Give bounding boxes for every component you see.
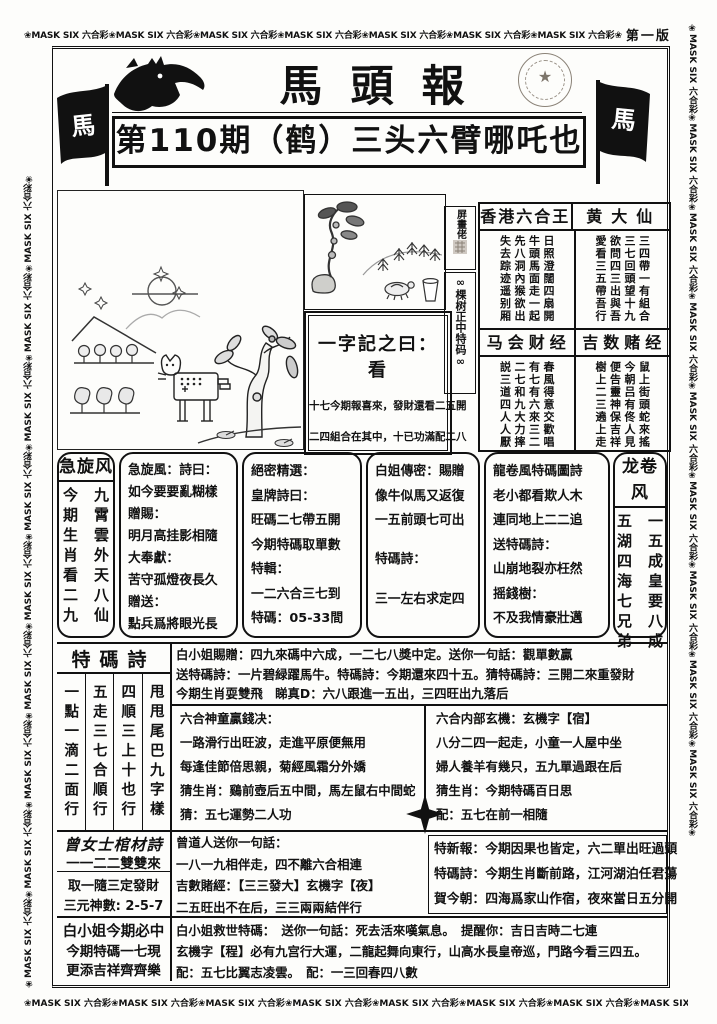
poem-line: 特碼詩： [375, 548, 471, 573]
poem-line: 説三道四人人厭 [500, 361, 511, 449]
must-line2: 更添吉祥齊齊樂 [57, 959, 170, 979]
border-left: ❀MASK SIX 六合彩❀MASK SIX 六合彩❀MASK SIX 六合彩❀… [22, 48, 42, 988]
poem-line: 如今要要亂糊樣 [128, 482, 229, 504]
poem-line: 先八洞內猴欲出 [514, 235, 525, 323]
poem-table-header-row-1: 香港六合王 黄大仙 [480, 204, 669, 231]
poem-line: 吉數賭經：【三三發大】玄機字【夜】 [176, 875, 426, 897]
mini-seal-icon [452, 239, 468, 255]
poem-line: 三七回頭望十九 [624, 235, 635, 323]
poem-line: 旺碼二七帶五開 [251, 509, 353, 534]
poem-line: 二五旺出不在后，三三兩兩結伴行 [176, 897, 426, 919]
section-title-hk-liuhe: 香港六合王 [480, 204, 571, 231]
poem-jishu: 鼠上街頭蛇來搖 今朝吕有佟人見 便告靈神保吉祥 樹上二三遶上走 [592, 361, 654, 446]
longjuan-poem-box: 龍卷風特碼圖詩 老小都看欺人木 連同地上二二追 送特碼詩： 山崩地裂亦枉然 摇錢… [484, 452, 610, 638]
shentong-block: 六合神童贏錢决： 一路滑行出旺波，走進平原便無用 每逢佳節倍思親，菊經風霜分外嬌… [180, 707, 420, 827]
poem-line: 婦人養羊有幾只，五九單過跟在后 [436, 755, 666, 779]
poem-line: 一點一滴二面行 [60, 684, 81, 821]
poem-line: 甩甩尾巴九字樣 [146, 684, 167, 821]
poem-line: 欲問四三出與吾 [610, 235, 621, 323]
tips-rows: 白小姐賜贈：四九來碼中六成，一二七八獎中定。送你一句話：觀單數贏 送特碼詩：一片… [176, 645, 668, 704]
divider-tema-top [57, 642, 668, 644]
one-word-title: 一字記之曰：看 [309, 330, 447, 382]
poem-line: 一路滑行出旺波，走進平原便無用 [180, 731, 420, 755]
tip-row: 今期生肖耍雙飛 睇真D：六八跟進一五出，三四旺出九落后 [176, 684, 668, 704]
texin-box: 特新報：今期因果也皆定，六二單出旺過頭 特碼詩：今期生肖斷前路，江河湖泊任君蕩 … [428, 835, 667, 914]
coffin-line2: 取一隨三定發財 [57, 875, 170, 894]
poem-cell-jishu: 鼠上街頭蛇來搖 今朝吕有佟人見 便告靈神保吉祥 樹上二三遶上走 [574, 357, 670, 450]
poem-line: 鼠上街頭蛇來搖 [639, 361, 650, 449]
xuanfeng-lines: 今期生肖看二九 九霄雲外天八仙 [59, 482, 113, 632]
poem-line: 三四帶一有組合 [639, 235, 650, 323]
poem-line: 玄機字【程】必有九宫行大運，二龍起舞向東行，山高水長皇帝巡，門路今看三四五。 [176, 941, 666, 962]
poem-line: 樹上二三遶上走 [595, 361, 606, 449]
right-flag-banner-icon: 馬 [588, 74, 652, 188]
poem-line: 特碼：05-33間 [251, 607, 353, 632]
coffin-line3: 三元神數: 2-5-7 [57, 895, 170, 914]
poem-table: 香港六合王 黄大仙 日照澄闊四扇開 牛頭馬面走一起 先八洞內猴欲出 失去踪迹遥别… [478, 202, 671, 452]
poem-line: 猜：五七運勢二人功 [180, 803, 420, 827]
right-flag-glyph: 馬 [610, 99, 638, 136]
poem-line: 八分二四一起走，小童一人屋中坐 [436, 731, 666, 755]
poem-cell-macai: 春風得意交歡唱 有七有六來三二 二七和九大力摔 説三道四人人厭 [480, 357, 574, 450]
longjuan-line-left: 一五成皇要八成 [645, 513, 666, 653]
side-strip-bottom: ∞棵树正中特码∞ [444, 272, 476, 394]
poem-line: 配：五七在前一相隨 [436, 803, 666, 827]
poem-line: 特新報：今期因果也皆定，六二單出旺過頭 [434, 837, 661, 862]
left-flag-banner-icon: 馬 [55, 80, 115, 190]
side-strip-bottom-label: ∞棵树正中特码∞ [452, 276, 468, 368]
border-top: ❀MASK SIX 六合彩❀MASK SIX 六合彩❀MASK SIX 六合彩❀… [24, 24, 674, 44]
zengdao-block: 曾道人送你一句話： 一八一九相伴走，四不離六合相連 吉數賭經：【三三發大】玄機字… [176, 832, 426, 918]
border-right: ❀MASK SIX 六合彩❀MASK SIX 六合彩❀MASK SIX 六合彩❀… [679, 24, 699, 999]
poem-line: 三一左右求定四 [375, 588, 471, 613]
section-title-jishu: 吉数赌经 [574, 328, 670, 357]
divider-bottom-row [57, 916, 668, 918]
poem-line: 一二六合三七到 [251, 583, 353, 608]
poem-table-body-row-2: 春風得意交歡唱 有七有六來三二 二七和九大力摔 説三道四人人厭 鼠上街頭蛇來搖 … [480, 357, 669, 450]
xuanfeng-line-right: 今期生肖看二九 [60, 487, 81, 627]
poem-line: 賀今朝：四海爲家山作宿，夜來當日五分開 [434, 887, 661, 912]
border-top-text: ❀MASK SIX 六合彩❀MASK SIX 六合彩❀MASK SIX 六合彩❀… [24, 28, 622, 41]
one-word-box: 一字記之曰：看 十七今期報喜來，發財還看二五開 二四組合在其中，十已功滿配二八 [304, 311, 452, 455]
one-word-line2: 二四組合在其中，十已功滿配二八 [309, 429, 447, 444]
baijie-poem: 白姐傳密：賜贈 像牛似馬又返復 一五前頭七可出 特碼詩： 三一左右求定四 [368, 454, 478, 613]
poem-table-body-row-1: 日照澄闊四扇開 牛頭馬面走一起 先八洞內猴欲出 失去踪迹遥别厢 三四帶一有組合 … [480, 231, 669, 328]
poem-line: 有七有六來三二 [529, 361, 540, 449]
poem-line: 送特碼詩： [493, 534, 601, 559]
poem-hk-liuhe: 日照澄闊四扇開 牛頭馬面走一起 先八洞內猴欲出 失去踪迹遥别厢 [496, 235, 558, 324]
landscape-drawing [57, 190, 304, 450]
must-line1: 今期特碼一七現 [57, 940, 170, 960]
poem-cell-hk-liuhe: 日照澄闊四扇開 牛頭馬面走一起 先八洞內猴欲出 失去踪迹遥别厢 [480, 231, 574, 328]
poem-line: 配：五七比翼志凌雲。 配：一三回春四八數 [176, 962, 666, 983]
poem-line: 五走三七合順行 [89, 684, 110, 821]
baijie-box: 白姐傳密：賜贈 像牛似馬又返復 一五前頭七可出 特碼詩： 三一左右求定四 [366, 452, 480, 638]
poem-line: 日照澄闊四扇開 [543, 235, 554, 323]
xuanfeng-poem-box: 急旋風：詩曰： 如今要要亂糊樣 贈賜： 明月高挂影相隨 大奉獻： 苦守孤燈夜長久… [119, 452, 238, 638]
side-strip-top-label: 屏畫佬 [453, 209, 468, 239]
seal-star-icon: ★ [518, 67, 572, 86]
poem-line: 失去踪迹遥别厢 [500, 235, 511, 323]
poem-line: 一五前頭七可出 [375, 509, 471, 534]
poem-line: 一八一九相伴走，四不離六合相連 [176, 854, 426, 876]
section-title-macai: 马会财经 [480, 328, 574, 357]
poem-line: 老小都看欺人木 [493, 485, 601, 510]
longjuan-box: 龙卷风 五湖四海七兄弟 一五成皇要八成 [613, 452, 667, 638]
juemi-poem: 絕密精選： 皇牌詩曰： 旺碼二七帶五開 今期特碼取單數 特輯： 一二六合三七到 … [244, 454, 360, 632]
poem-line: 特碼詩：今期生肖斷前路，江河湖泊任君蕩 [434, 862, 661, 887]
poem-line: 愛看三五帶吾行 [595, 235, 606, 323]
bonsai-scene-drawing [304, 194, 446, 310]
poem-line: 贈送： [128, 592, 229, 614]
tema-col-1: 甩甩尾巴九字樣 [142, 674, 171, 830]
jiushi-block: 白小姐救世特碼： 送你一句話：死去活來嘆氣息。 提醒你：吉日吉時二七連 玄機字【… [176, 920, 666, 983]
longjuan-lines: 五湖四海七兄弟 一五成皇要八成 [615, 508, 665, 658]
longjuan-poem: 龍卷風特碼圖詩 老小都看欺人木 連同地上二二追 送特碼詩： 山崩地裂亦枉然 摇錢… [486, 454, 608, 632]
poem-line: 特輯： [251, 558, 353, 583]
poem-line: 春風得意交歡唱 [543, 361, 554, 449]
tip-row: 白小姐賜贈：四九來碼中六成，一二七八獎中定。送你一句話：觀單數贏 [176, 645, 668, 665]
poem-line: 點兵爲將眼光長 [128, 614, 229, 636]
coffin-line1: 一一二二雙雙來 [57, 852, 170, 872]
tema-col-4: 一點一滴二面行 [57, 674, 85, 830]
divider-tips-bottom [172, 704, 668, 706]
horse-head-art [106, 54, 208, 116]
poem-line: 明月高挂影相隨 [128, 526, 229, 548]
poem-line: 白姐傳密：賜贈 [375, 460, 471, 485]
poem-line: 便告靈神保吉祥 [610, 361, 621, 449]
poem-line: 大奉獻： [128, 548, 229, 570]
poem-macai: 春風得意交歡唱 有七有六來三二 二七和九大力摔 説三道四人人厭 [496, 361, 558, 446]
poem-line: 六合神童贏錢决： [180, 707, 420, 731]
left-flag-glyph: 馬 [69, 105, 97, 142]
side-strip-top: 屏畫佬 [444, 206, 476, 270]
one-word-line1: 十七今期報喜來，發財還看二五開 [309, 398, 447, 413]
sparkle-star-icon [406, 794, 444, 834]
poem-line: 四順三上十也行 [117, 684, 138, 821]
poem-line: 龍卷風特碼圖詩 [493, 460, 601, 485]
poem-line: 贈賜： [128, 504, 229, 526]
poem-wongtaisin: 三四帶一有組合 三七回頭望十九 欲問四三出與吾 愛看三五帶吾行 [592, 235, 654, 324]
poem-cell-wongtaisin: 三四帶一有組合 三七回頭望十九 欲問四三出與吾 愛看三五帶吾行 [574, 231, 670, 328]
one-word-inner: 一字記之曰：看 十七今期報喜來，發財還看二五開 二四組合在其中，十已功滿配二八 [308, 315, 448, 451]
tema-col-2: 四順三上十也行 [113, 674, 142, 830]
xuanfeng-poem: 急旋風：詩曰： 如今要要亂糊樣 贈賜： 明月高挂影相隨 大奉獻： 苦守孤燈夜長久… [121, 454, 236, 636]
xuanfeng-box: 急旋风 今期生肖看二九 九霄雲外天八仙 [57, 452, 115, 638]
newspaper-page: ❀MASK SIX 六合彩❀MASK SIX 六合彩❀MASK SIX 六合彩❀… [0, 0, 717, 1024]
edition-label: 第一版 [626, 25, 671, 44]
section-title-wongtaisin: 黄大仙 [571, 204, 670, 231]
border-bottom: ❀MASK SIX 六合彩❀MASK SIX 六合彩❀MASK SIX 六合彩❀… [24, 996, 688, 1014]
issue-headline: 第110期（鹤）三头六臂哪吒也 [112, 116, 586, 168]
poem-line: 今朝吕有佟人見 [624, 361, 635, 449]
poem-line: 絕密精選： [251, 460, 353, 485]
xuanfeng-title: 急旋风 [59, 454, 113, 482]
poem-line: 山崩地裂亦枉然 [493, 558, 601, 583]
must-title: 白小姐今期必中 [57, 920, 170, 941]
poem-line: 今期特碼取單數 [251, 534, 353, 559]
headline-rule [112, 112, 582, 113]
longjuan-line-right: 五湖四海七兄弟 [614, 513, 635, 653]
poem-line: 每逢佳節倍思親，菊經風霜分外嬌 [180, 755, 420, 779]
poem-line: 六合内部玄機：玄機字【宿】 [436, 707, 666, 731]
longjuan-title: 龙卷风 [615, 454, 665, 508]
tema-columns: 甩甩尾巴九字樣 四順三上十也行 五走三七合順行 一點一滴二面行 [57, 674, 170, 830]
divider-left-column [170, 642, 172, 981]
tip-row: 送特碼詩：一片碧緑躍馬牛。特碼詩：今期還來四十五。猜特碼詩：三開二來重發財 [176, 665, 668, 685]
poem-line: 二七和九大力摔 [514, 361, 525, 449]
poem-line: 猜生肖：今期特碼百日思 [436, 779, 666, 803]
tema-col-3: 五走三七合順行 [85, 674, 114, 830]
paper-title: 馬頭報 [218, 52, 536, 114]
poem-line: 像牛似馬又返復 [375, 485, 471, 510]
poem-line: 曾道人送你一句話： [176, 832, 426, 854]
poem-line: 急旋風：詩曰： [128, 460, 229, 482]
poem-line: 苦守孤燈夜長久 [128, 570, 229, 592]
poem-line: 猜生肖：鷄前壺后五中間，馬左鼠右中間蛇 [180, 779, 420, 803]
poem-line: 連同地上二二追 [493, 509, 601, 534]
seal-stamp-icon: ★ [518, 53, 574, 109]
neibu-block: 六合内部玄機：玄機字【宿】 八分二四一起走，小童一人屋中坐 婦人養羊有幾只，五九… [436, 707, 666, 827]
tema-title: 特碼詩 [57, 645, 170, 674]
poem-line: 白小姐救世特碼： 送你一句話：死去活來嘆氣息。 提醒你：吉日吉時二七連 [176, 920, 666, 941]
poem-line: 牛頭馬面走一起 [529, 235, 540, 323]
poem-line: 不及我情豪壯邁 [493, 607, 601, 632]
juemi-box: 絕密精選： 皇牌詩曰： 旺碼二七帶五開 今期特碼取單數 特輯： 一二六合三七到 … [242, 452, 362, 638]
poem-line: 摇錢樹： [493, 583, 601, 608]
poem-table-header-row-2: 马会财经 吉数赌经 [480, 328, 669, 357]
poem-line: 皇牌詩曰： [251, 485, 353, 510]
xuanfeng-line-left: 九霄雲外天八仙 [91, 487, 112, 627]
divider-coffin [57, 871, 170, 872]
